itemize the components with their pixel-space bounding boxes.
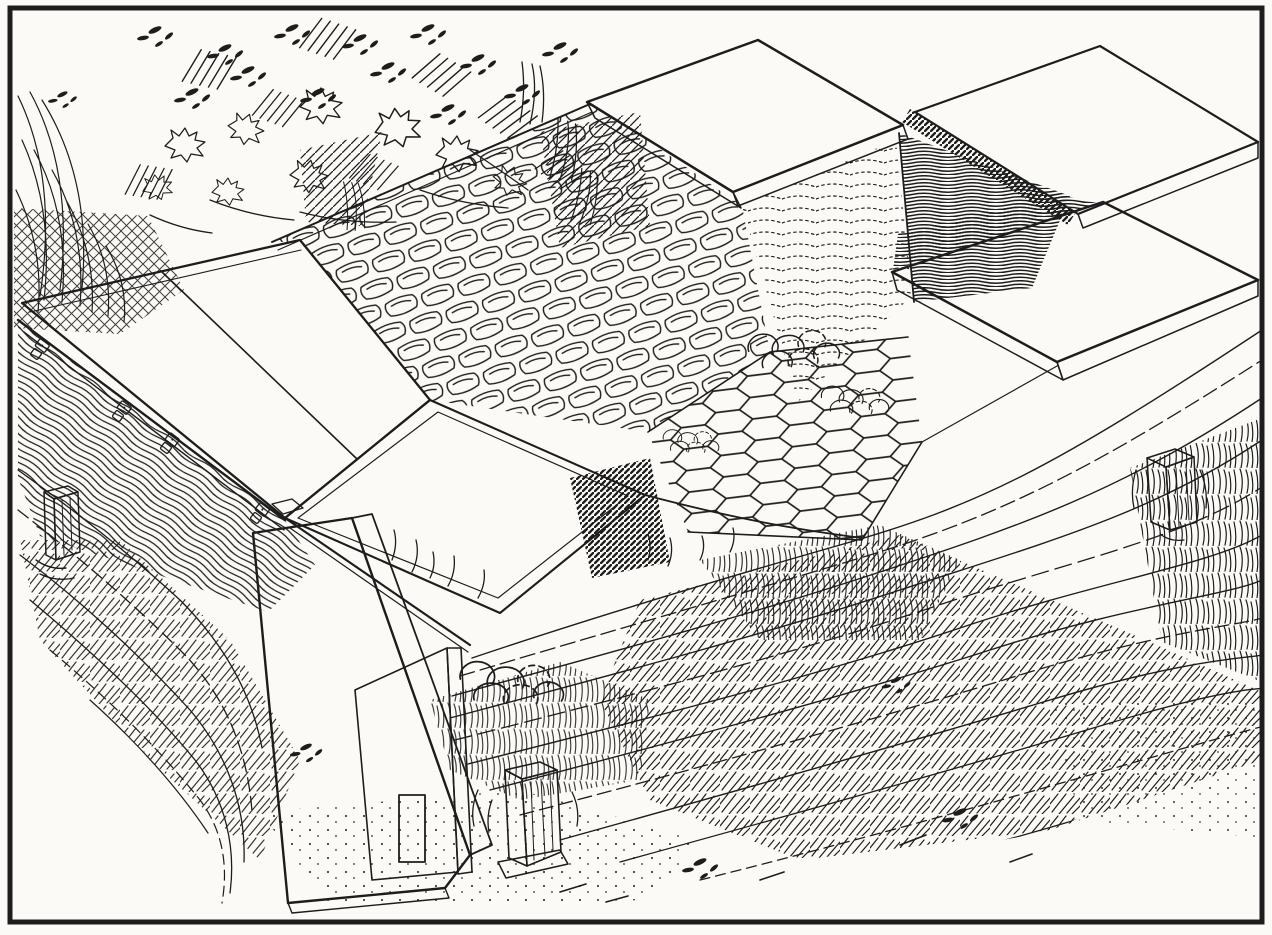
engraving-canvas: [0, 0, 1272, 935]
engraving-figure: [0, 0, 1272, 935]
shadow-wedge: [540, 112, 650, 248]
